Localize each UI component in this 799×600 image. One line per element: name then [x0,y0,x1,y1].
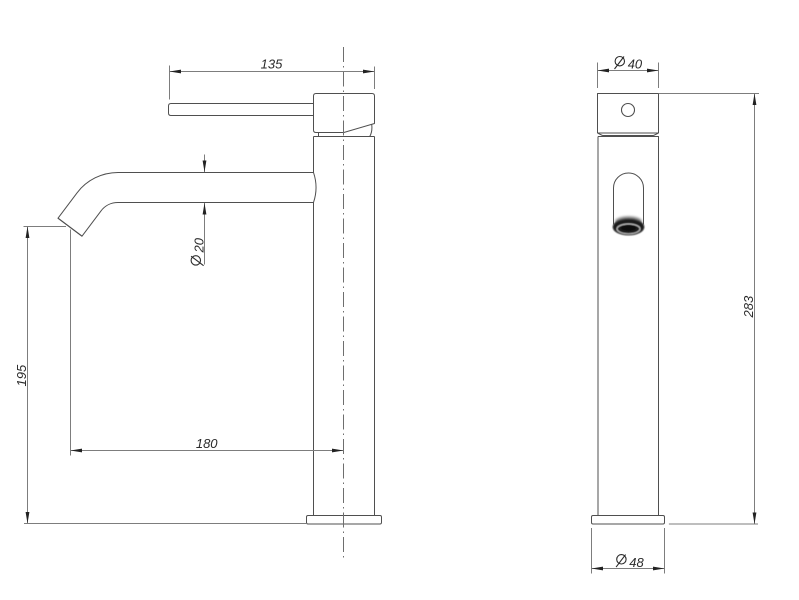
svg-text:40: 40 [628,57,643,72]
svg-text:283: 283 [741,295,756,318]
svg-text:195: 195 [14,364,29,386]
svg-text:135: 135 [261,57,283,72]
svg-text:20: 20 [191,237,206,253]
svg-text:48: 48 [629,555,644,570]
svg-text:180: 180 [196,436,218,451]
